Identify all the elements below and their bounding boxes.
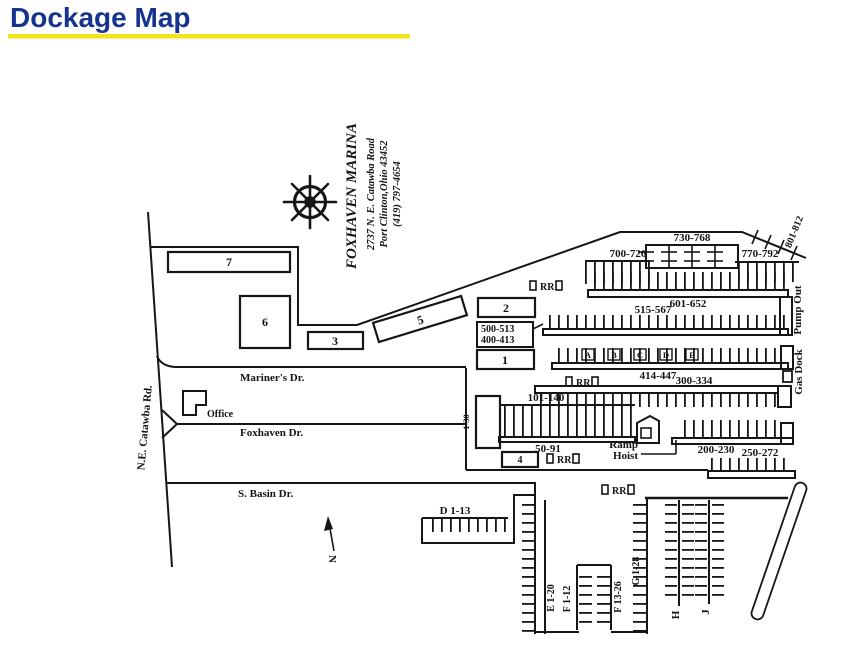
north-label: N (326, 555, 338, 563)
hoist-well (641, 428, 651, 438)
building-7-label: 7 (226, 255, 232, 269)
dock-label-200-230: 200-230 (698, 444, 735, 456)
dock-label-G: G 1-28 (631, 557, 642, 586)
restroom-label: RR (576, 378, 591, 389)
gas-dock-structure (783, 371, 792, 382)
dock-label-414-447: 414-447 (640, 370, 677, 382)
restroom-1: RR (530, 281, 562, 293)
junction-line-1 (162, 410, 177, 424)
pump-out-label: Pump Out (792, 285, 804, 335)
dock-label-E: E 1-20 (546, 584, 557, 612)
dock-D: D 1-13 (422, 495, 535, 543)
dock-500-400-box: 500-513 400-413 (477, 322, 543, 347)
marina-name: FOXHAVEN MARINA (344, 123, 360, 270)
dock-label-F13-26: F 13-26 (613, 581, 624, 613)
restroom-label: RR (612, 486, 627, 497)
restroom-2: RR (566, 377, 598, 389)
pier-b-label: B (611, 350, 617, 360)
hoist-label: Hoist (613, 450, 638, 462)
restroom-3: RR (547, 454, 579, 466)
restroom-label: RR (540, 282, 555, 293)
breakwater (750, 481, 808, 621)
restroom-4: RR (602, 485, 634, 497)
dockage-map-page: Dockage Map FOXHAVEN MARINA 2737 N. E. C… (0, 0, 845, 660)
dock-label-515-567: 515-567 (635, 304, 672, 316)
dock-label-D: D 1-13 (440, 505, 471, 517)
marina-address: 2737 N. E. Catawba Road (366, 137, 377, 251)
building-2-label: 2 (503, 301, 509, 315)
pier-d-label: D (663, 350, 669, 360)
buildings: 7 6 3 5 2 1 4 Office (168, 252, 538, 467)
dockage-map-svg: Dockage Map FOXHAVEN MARINA 2737 N. E. C… (0, 0, 845, 660)
building-4-label: 4 (518, 455, 523, 466)
dock-J: J (695, 500, 724, 615)
pier-c-label: C (637, 350, 643, 360)
dock-label-101-140: 101-140 (528, 392, 565, 404)
dock-730-768: 730-768 (638, 232, 738, 268)
dock-label-1-30: 1-30 (461, 414, 471, 430)
box-connector (533, 324, 543, 329)
sbasin-road-line (166, 483, 535, 500)
road-label-sbasin: S. Basin Dr. (238, 488, 293, 500)
building-3-label: 3 (332, 334, 338, 348)
dock-label-J: J (700, 609, 712, 615)
road-label-foxhaven: Foxhaven Dr. (240, 427, 303, 439)
restroom-label: RR (557, 455, 572, 466)
page-title: Dockage Map (10, 2, 191, 33)
dock-label-F1-12: F 1-12 (562, 586, 573, 613)
junction-line-2 (162, 424, 177, 438)
title-underline (8, 34, 410, 39)
dock-H: H (665, 500, 694, 619)
ships-wheel-icon (284, 176, 336, 228)
pier-e-label: E (689, 350, 695, 360)
building-6-label: 6 (262, 315, 268, 329)
dock-label-250-272: 250-272 (742, 447, 779, 459)
dock-label-801-812: 801-812 (783, 215, 806, 250)
dock-label-400-413: 400-413 (481, 335, 514, 346)
dock-label-500-513: 500-513 (481, 324, 514, 335)
dock-label-700-726: 700-726 (610, 248, 647, 260)
dock-E: E 1-20 (522, 500, 579, 634)
dock-515-567: 515-567 (543, 304, 788, 335)
dock-label-H: H (670, 610, 682, 619)
office-label: Office (207, 409, 234, 420)
marina-city: Port Clinton,Ohio 43452 (379, 140, 390, 248)
north-arrow: N (324, 516, 338, 563)
mariners-road-line (157, 356, 466, 367)
north-arrow-head (324, 516, 333, 531)
building-1-label: 1 (502, 353, 508, 367)
marina-info: FOXHAVEN MARINA 2737 N. E. Catawba Road … (344, 123, 403, 270)
dock-label-601-652: 601-652 (670, 298, 707, 310)
road-label-catawba: N.E. Catawba Rd. (135, 385, 154, 471)
pier-a-label: A (585, 350, 592, 360)
dock-label-730-768: 730-768 (674, 232, 711, 244)
dock-1-30 (476, 396, 500, 448)
dock-label-770-792: 770-792 (742, 248, 779, 260)
gas-dock-label: Gas Dock (793, 348, 805, 394)
roads: N.E. Catawba Rd. Mariner's Dr. Foxhaven … (135, 212, 535, 567)
office-building (183, 391, 206, 415)
building-5-label: 5 (415, 312, 425, 327)
road-label-mariners: Mariner's Dr. (240, 372, 305, 384)
marina-phone: (419) 797-4654 (392, 161, 403, 227)
dock-end-block (778, 386, 791, 407)
